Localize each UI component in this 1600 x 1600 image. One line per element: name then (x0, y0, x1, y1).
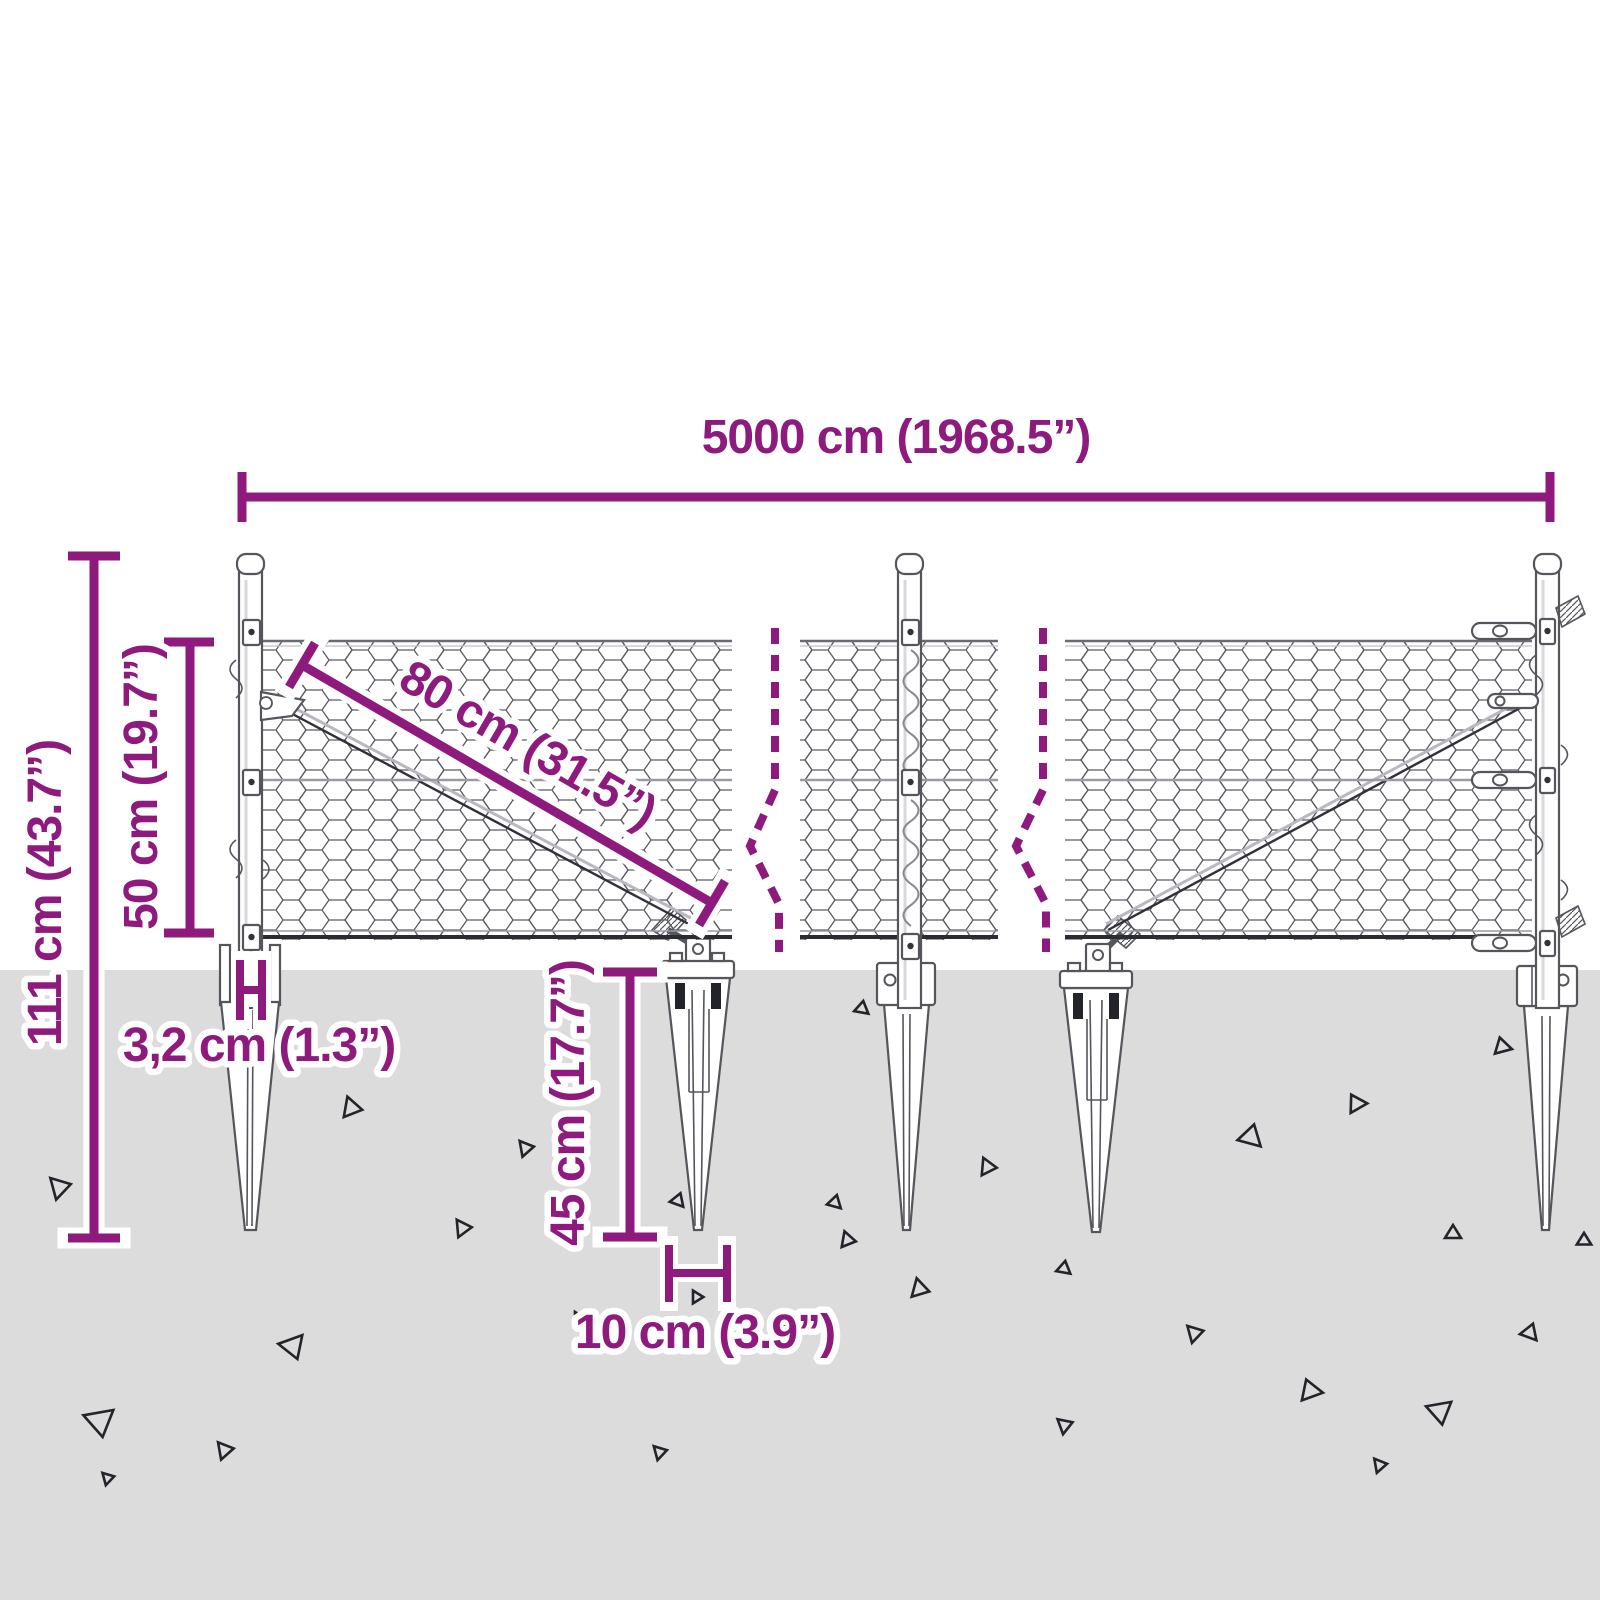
label-total-height: 111 cm (43.7”) (19, 740, 72, 1046)
diagonal-wire-clamp (1488, 694, 1538, 708)
spike-plate (1060, 971, 1132, 988)
spike-slot (675, 983, 685, 1009)
dimension-total-length (242, 472, 1550, 522)
diagram-canvas: 5000 cm (1968.5”) 111 cm (43.7”) 50 cm (… (0, 0, 1600, 1600)
post-cap (896, 554, 923, 574)
label-mesh-height: 50 cm (19.7”) (115, 644, 168, 930)
label-spike-depth: 45 cm (17.7”) (542, 960, 595, 1246)
spike-plate (662, 961, 734, 978)
label-spike-width: 10 cm (3.9”) (575, 1306, 835, 1359)
mesh-panel-3 (1065, 640, 1532, 940)
spike-slot (1073, 993, 1083, 1019)
spike-slot (1109, 993, 1119, 1019)
post-cap (1534, 554, 1561, 574)
break-mark-2 (1016, 628, 1046, 952)
label-post-width: 3,2 cm (1.3”) (123, 1019, 395, 1072)
wire-tensioner-bottom (1472, 931, 1555, 956)
label-total-length: 5000 cm (1968.5”) (702, 411, 1091, 464)
break-mark-1 (750, 628, 779, 952)
dimension-diagram: 5000 cm (1968.5”) 111 cm (43.7”) 50 cm (… (0, 0, 1600, 1600)
fence-post-center (896, 554, 923, 1008)
post-cap (237, 554, 264, 574)
dimension-mesh-height (164, 642, 214, 933)
spike-slot (711, 983, 721, 1009)
fence-post-right (1472, 554, 1585, 1008)
